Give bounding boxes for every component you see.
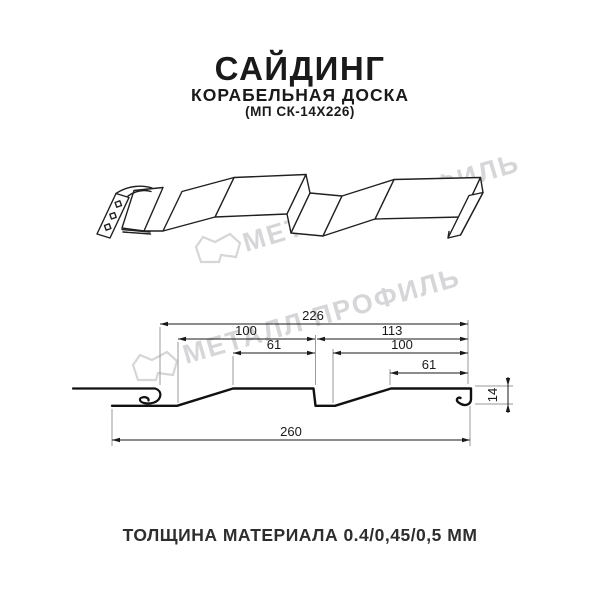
profile-3d-drawing	[97, 175, 483, 239]
page-root: САЙДИНГ КОРАБЕЛЬНАЯ ДОСКА (МП СК-14Х226)…	[0, 0, 600, 600]
profile3d-lock-strip	[122, 188, 163, 232]
dim-left-wave-top-label: 61	[267, 337, 281, 352]
dim-pitch-label: 226	[302, 308, 324, 323]
dim-height-label: 14	[485, 388, 500, 402]
drawing-canvas: МЕТАЛЛ ПРОФИЛЬ	[0, 0, 600, 600]
dim-total-width-label: 260	[280, 424, 302, 439]
section-lock-curl	[140, 389, 160, 404]
watermark-lower: МЕТАЛЛ ПРОФИЛЬ	[133, 262, 464, 380]
dim-left-wave-width-label: 100	[235, 323, 257, 338]
thickness-note: ТОЛЩИНА МАТЕРИАЛА 0.4/0,45/0,5 ММ	[0, 525, 600, 546]
dim-right-pitch-label: 113	[382, 323, 403, 338]
profile3d-end-hook-curl	[448, 232, 449, 239]
dim-right-wave-width-label: 100	[391, 337, 413, 352]
watermark-logo-icon	[133, 352, 177, 380]
section-profile-outline	[112, 389, 471, 406]
dim-right-wave-top-label: 61	[422, 357, 436, 372]
dimension-lines	[112, 322, 510, 442]
watermark-logo-icon	[196, 234, 240, 262]
